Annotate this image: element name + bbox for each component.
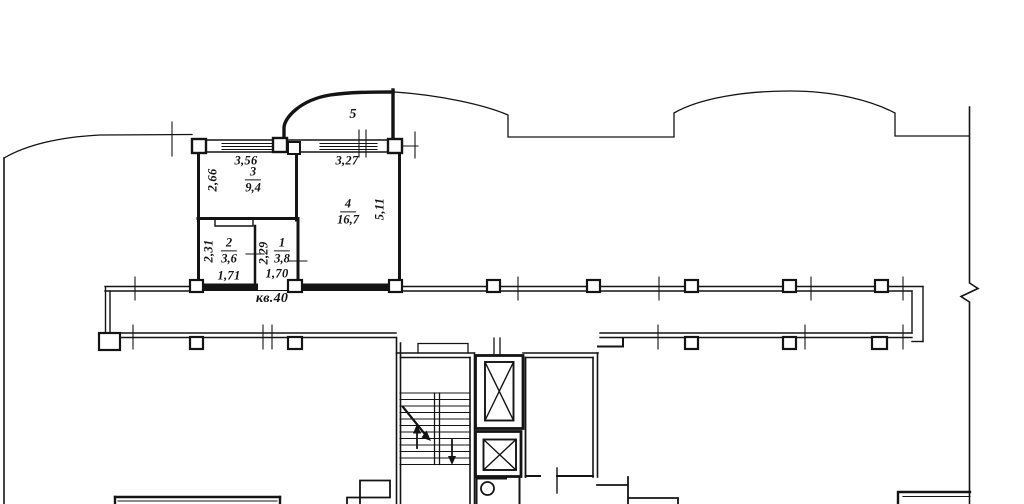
chute-circle xyxy=(481,482,494,495)
room2-number: 2 xyxy=(221,236,237,251)
room1-width-dim: 1,70 xyxy=(265,267,288,282)
room1-number: 1 xyxy=(274,236,290,251)
floor-plan-drawing xyxy=(0,0,1024,504)
room1-area: 3,8 xyxy=(274,253,290,266)
building-outline xyxy=(4,91,978,504)
room2-area: 3,6 xyxy=(221,253,237,266)
floor-plan-page: 5 3,56 2,66 3 9,4 3,27 5,11 4 16,7 2,31 … xyxy=(0,0,1024,504)
room2-height-dim: 2,31 xyxy=(202,239,217,262)
elevator-lobby xyxy=(523,338,623,493)
room3-number-area: 3 9,4 xyxy=(245,165,261,194)
balcony-number-label: 5 xyxy=(349,107,356,123)
room1-number-area: 1 3,8 xyxy=(274,236,290,265)
room2-width-dim: 1,71 xyxy=(217,269,240,284)
balcony-5-outline xyxy=(284,90,393,139)
stair-direction-arrows xyxy=(403,407,456,465)
room3-height-dim: 2,66 xyxy=(206,168,221,191)
stairwell xyxy=(397,338,475,504)
room4-area: 16,7 xyxy=(337,214,359,227)
window-room4 xyxy=(320,144,377,150)
room3-area: 9,4 xyxy=(245,182,261,195)
elevator-shaft-lower xyxy=(476,432,522,477)
apartment-40-walls xyxy=(192,130,402,291)
room4-height-dim: 5,11 xyxy=(373,198,388,220)
room1-height-dim: 2,29 xyxy=(257,241,272,264)
room4-width-dim: 3,27 xyxy=(335,154,358,169)
room2-number-area: 2 3,6 xyxy=(221,236,237,265)
elevator-shaft-upper xyxy=(476,338,524,429)
apartment-number-label: кв.40 xyxy=(256,291,288,307)
room3-number: 3 xyxy=(245,165,261,180)
room4-number-area: 4 16,7 xyxy=(337,197,359,226)
room4-number: 4 xyxy=(340,197,356,212)
window-room3 xyxy=(222,144,273,150)
garbage-chute-room xyxy=(477,477,520,504)
lower-floor-fragments xyxy=(115,477,970,504)
